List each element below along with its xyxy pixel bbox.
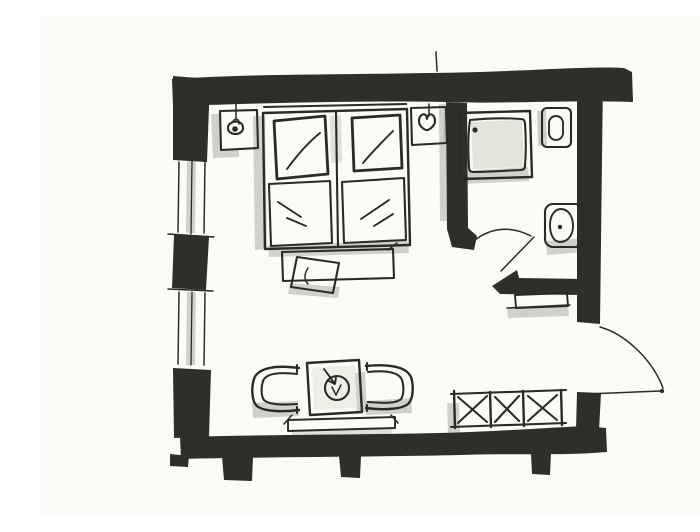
entry-door-handle-dot: [660, 389, 664, 393]
floorplan-sketch: [40, 16, 700, 516]
wall-bottom-pier-1: [222, 457, 253, 481]
table-top-tint: [312, 365, 357, 410]
lamp-left-dot: [232, 126, 238, 132]
shower-drain: [472, 127, 477, 132]
shower-tray-tint: [471, 120, 524, 169]
wall-left-lower: [173, 368, 211, 438]
wall-bottom-pier-3: [531, 453, 551, 475]
floorplan-canvas: [40, 16, 700, 516]
toilet-flush-dot: [558, 225, 562, 229]
wall-left-upper: [173, 76, 210, 162]
wall-bottom-pier-2: [339, 456, 361, 478]
wall-tick-above-top: [436, 52, 437, 71]
wall-left-pier: [172, 235, 209, 290]
wall-right-lower: [576, 392, 601, 431]
